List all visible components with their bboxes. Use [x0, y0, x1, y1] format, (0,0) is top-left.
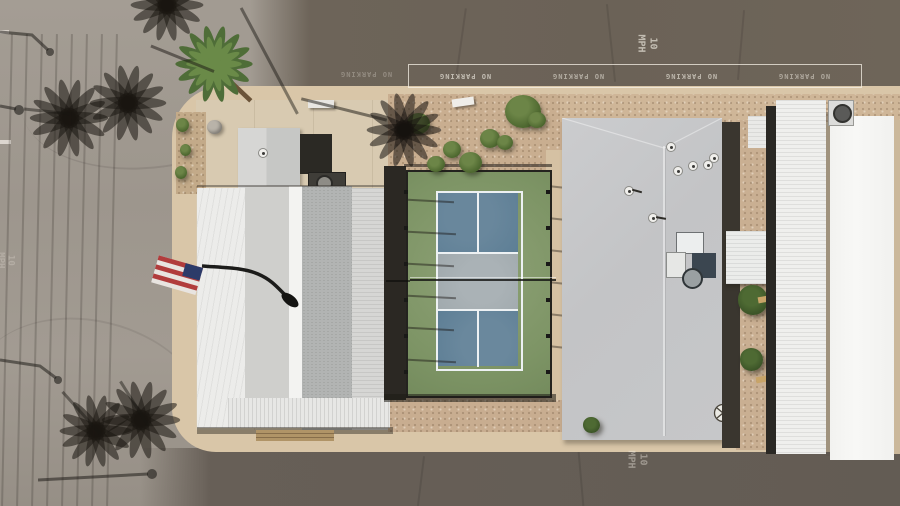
tree — [583, 417, 600, 433]
fence-post — [404, 334, 408, 338]
lamp-shadow — [0, 24, 60, 60]
court-net-highlight — [410, 277, 556, 278]
court-fence-bottom-shadow — [384, 394, 556, 402]
rock — [207, 120, 222, 134]
shrub — [528, 112, 546, 128]
white-smooth-roof — [830, 116, 894, 460]
ac-fan — [682, 268, 703, 289]
net-shadow-extension — [386, 280, 410, 282]
fence-post — [546, 298, 550, 302]
palm-shadow — [82, 62, 174, 144]
roof-top-edge-shadow — [197, 185, 388, 187]
aerial-photo: NO PARKING NO PARKING NO PARKING NO PARK… — [0, 0, 900, 506]
shrub — [459, 152, 482, 173]
lamp-shadow — [38, 466, 164, 488]
weed — [175, 166, 187, 179]
lamp-arm — [202, 266, 288, 298]
white-corrugated-roof — [776, 100, 826, 454]
shed-roof — [238, 128, 300, 188]
vent-stack — [833, 104, 852, 123]
speed-limit-bottom: 10 MPH — [626, 447, 649, 473]
no-parking-text: NO PARKING — [778, 72, 830, 80]
gap-shadow — [722, 122, 740, 448]
lamp-shadow — [0, 98, 34, 124]
shrub — [497, 135, 513, 150]
fence-post — [404, 190, 408, 194]
no-parking-text: NO PARKING — [552, 72, 604, 80]
palm-shadow — [122, 0, 212, 44]
court-center-line-bottom — [477, 310, 479, 367]
roof-vent — [673, 166, 683, 176]
roof-vent — [258, 148, 268, 158]
fence-post — [546, 262, 550, 266]
court-boundary-line — [436, 191, 523, 371]
gap-shadow-far — [766, 106, 776, 454]
palm-shadow — [358, 90, 450, 170]
tree — [740, 348, 763, 371]
court-net — [410, 279, 556, 281]
us-flag-icon — [151, 255, 203, 295]
roof-vent — [709, 153, 719, 163]
court-center-line-top — [477, 192, 479, 253]
fence-post — [404, 262, 408, 266]
no-parking-text: NO PARKING — [665, 72, 717, 80]
fence-post — [404, 298, 408, 302]
speed-limit-left: 10 MPH — [0, 247, 15, 273]
wood-steps — [256, 430, 334, 441]
fence-post — [404, 226, 408, 230]
no-parking-stencil-box: NO PARKING NO PARKING NO PARKING NO PARK… — [408, 64, 862, 88]
roof-ridge-seam — [663, 146, 665, 436]
roof-hip-lines — [562, 118, 722, 178]
lamp-shadow — [0, 354, 64, 386]
right-edge-strip — [894, 120, 900, 454]
roof-vent — [688, 161, 698, 171]
fence-post — [404, 370, 408, 374]
speed-limit-top: 10 MPH — [636, 31, 659, 57]
carport-shadow — [300, 134, 332, 174]
fence-post — [546, 370, 550, 374]
weed — [176, 118, 189, 132]
roof-vent — [666, 142, 676, 152]
fence-post — [546, 226, 550, 230]
court-shade-structure — [384, 166, 406, 400]
skylight-box — [676, 232, 704, 254]
no-parking-text-faint: NO PARKING — [340, 70, 392, 78]
roof-section-panel — [352, 188, 388, 430]
fence-post — [546, 190, 550, 194]
road-bottom — [140, 448, 900, 506]
awning-corrugated — [228, 398, 390, 428]
weed — [180, 144, 191, 156]
no-parking-text: NO PARKING — [439, 72, 491, 80]
flagpole-and-lamp — [140, 250, 310, 310]
fence-post — [546, 334, 550, 338]
